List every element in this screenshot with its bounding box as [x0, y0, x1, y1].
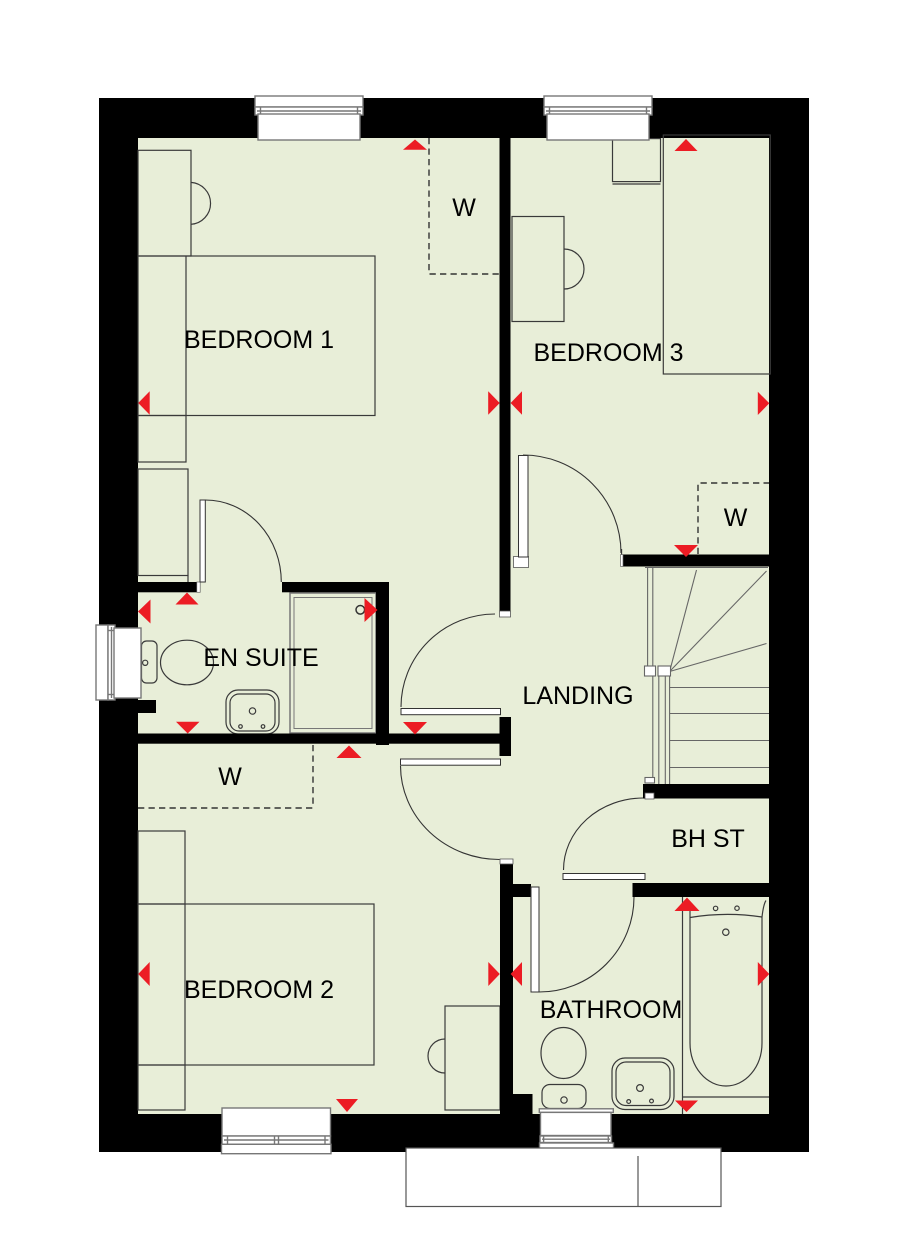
- svg-text:EN SUITE: EN SUITE: [203, 644, 318, 672]
- svg-text:BEDROOM 2: BEDROOM 2: [184, 976, 334, 1004]
- svg-text:BATHROOM: BATHROOM: [540, 996, 683, 1024]
- svg-text:LANDING: LANDING: [522, 682, 633, 710]
- svg-text:BEDROOM 3: BEDROOM 3: [533, 339, 683, 367]
- svg-text:BH ST: BH ST: [671, 825, 745, 853]
- svg-text:W: W: [452, 194, 476, 222]
- svg-text:W: W: [218, 763, 242, 791]
- svg-text:BEDROOM 1: BEDROOM 1: [184, 326, 334, 354]
- svg-text:W: W: [724, 504, 748, 532]
